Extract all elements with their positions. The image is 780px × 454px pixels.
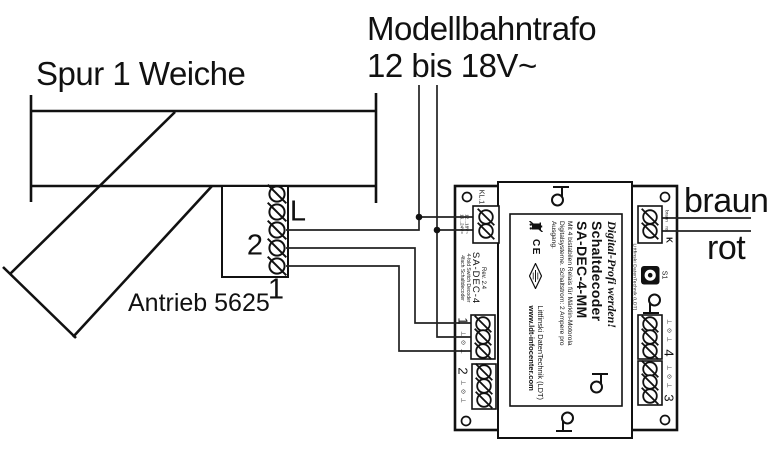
transformer-name: Modellbahntrafo xyxy=(367,10,596,48)
kl1-voltage-dc: 16...24V= xyxy=(459,214,464,234)
label-product-1: Schaltdecoder xyxy=(589,221,604,402)
output-1-marks: ⊥ ⊙ ⊥ xyxy=(460,331,467,355)
kl1-label: KL.1 xyxy=(478,190,485,204)
product-label: Digital-Profi werden! Schaltdecoder SA-D… xyxy=(470,254,662,366)
output-4-marks: ⊥ ⊙ ⊥ xyxy=(666,319,673,343)
wheelie-bin-icon xyxy=(529,221,543,232)
label-desc-1: Mit 4 bistabilen Relais für Märklin-Moto… xyxy=(565,221,573,402)
k-brown-mark: braun xyxy=(665,210,670,222)
output-1-label: 1 xyxy=(456,317,471,324)
output-4-label: 4 xyxy=(662,349,677,356)
label-website: www.ldt-infocenter.com xyxy=(527,306,536,400)
label-description: Mit 4 bistabilen Relais für Märklin-Moto… xyxy=(549,221,573,402)
kl1-voltage-ac: 12...18V~ xyxy=(464,214,469,234)
junction-dot xyxy=(416,214,423,221)
wire-brown-label: braun xyxy=(684,182,768,221)
wiring-diagram: Spur 1 Weiche Modellbahntrafo 12 bis 18V… xyxy=(0,0,780,454)
kl1-voltage: 12...18V~ 16...24V= xyxy=(459,214,470,234)
label-product-2: SA-DEC-4-MM xyxy=(575,221,590,402)
track-label: Spur 1 Weiche xyxy=(36,55,245,93)
k-terminal-label: K xyxy=(665,237,674,243)
output-3-marks: ⊥ ⊙ ⊥ xyxy=(666,365,673,389)
label-company: Littfinski DatenTechnik (LDT) xyxy=(536,306,545,400)
transformer-voltage: 12 bis 18V~ xyxy=(367,47,537,85)
label-company-block: Littfinski DatenTechnik (LDT) www.ldt-in… xyxy=(527,306,545,402)
label-slogan: Digital-Profi werden! xyxy=(604,221,619,402)
output-2-marks: ⊥ ⊙ ⊥ xyxy=(460,380,467,404)
diamond-logo-icon xyxy=(529,263,542,289)
label-desc-2: Digitalsysteme. Schaltstrom: 2 Ampere pr… xyxy=(557,221,565,402)
drive-terminal-2: 2 xyxy=(247,230,263,263)
drive-terminal-1: 1 xyxy=(268,274,284,307)
output-2-label: 2 xyxy=(456,367,471,374)
wire-red-label: rot xyxy=(707,229,745,268)
lantern-icon xyxy=(556,413,573,432)
drive-terminal-l: L xyxy=(290,196,306,229)
junction-dot xyxy=(434,227,441,234)
ce-mark: CE xyxy=(530,239,541,256)
label-desc-3: Ausgang. xyxy=(549,221,557,402)
drive-label: Antrieb 5625 xyxy=(128,289,270,318)
output-3-label: 3 xyxy=(662,394,677,401)
board-type-en: 4-fold Switch Decoder xyxy=(464,245,469,311)
k-red-mark: rot xyxy=(665,226,670,231)
lantern-icon xyxy=(552,187,569,206)
